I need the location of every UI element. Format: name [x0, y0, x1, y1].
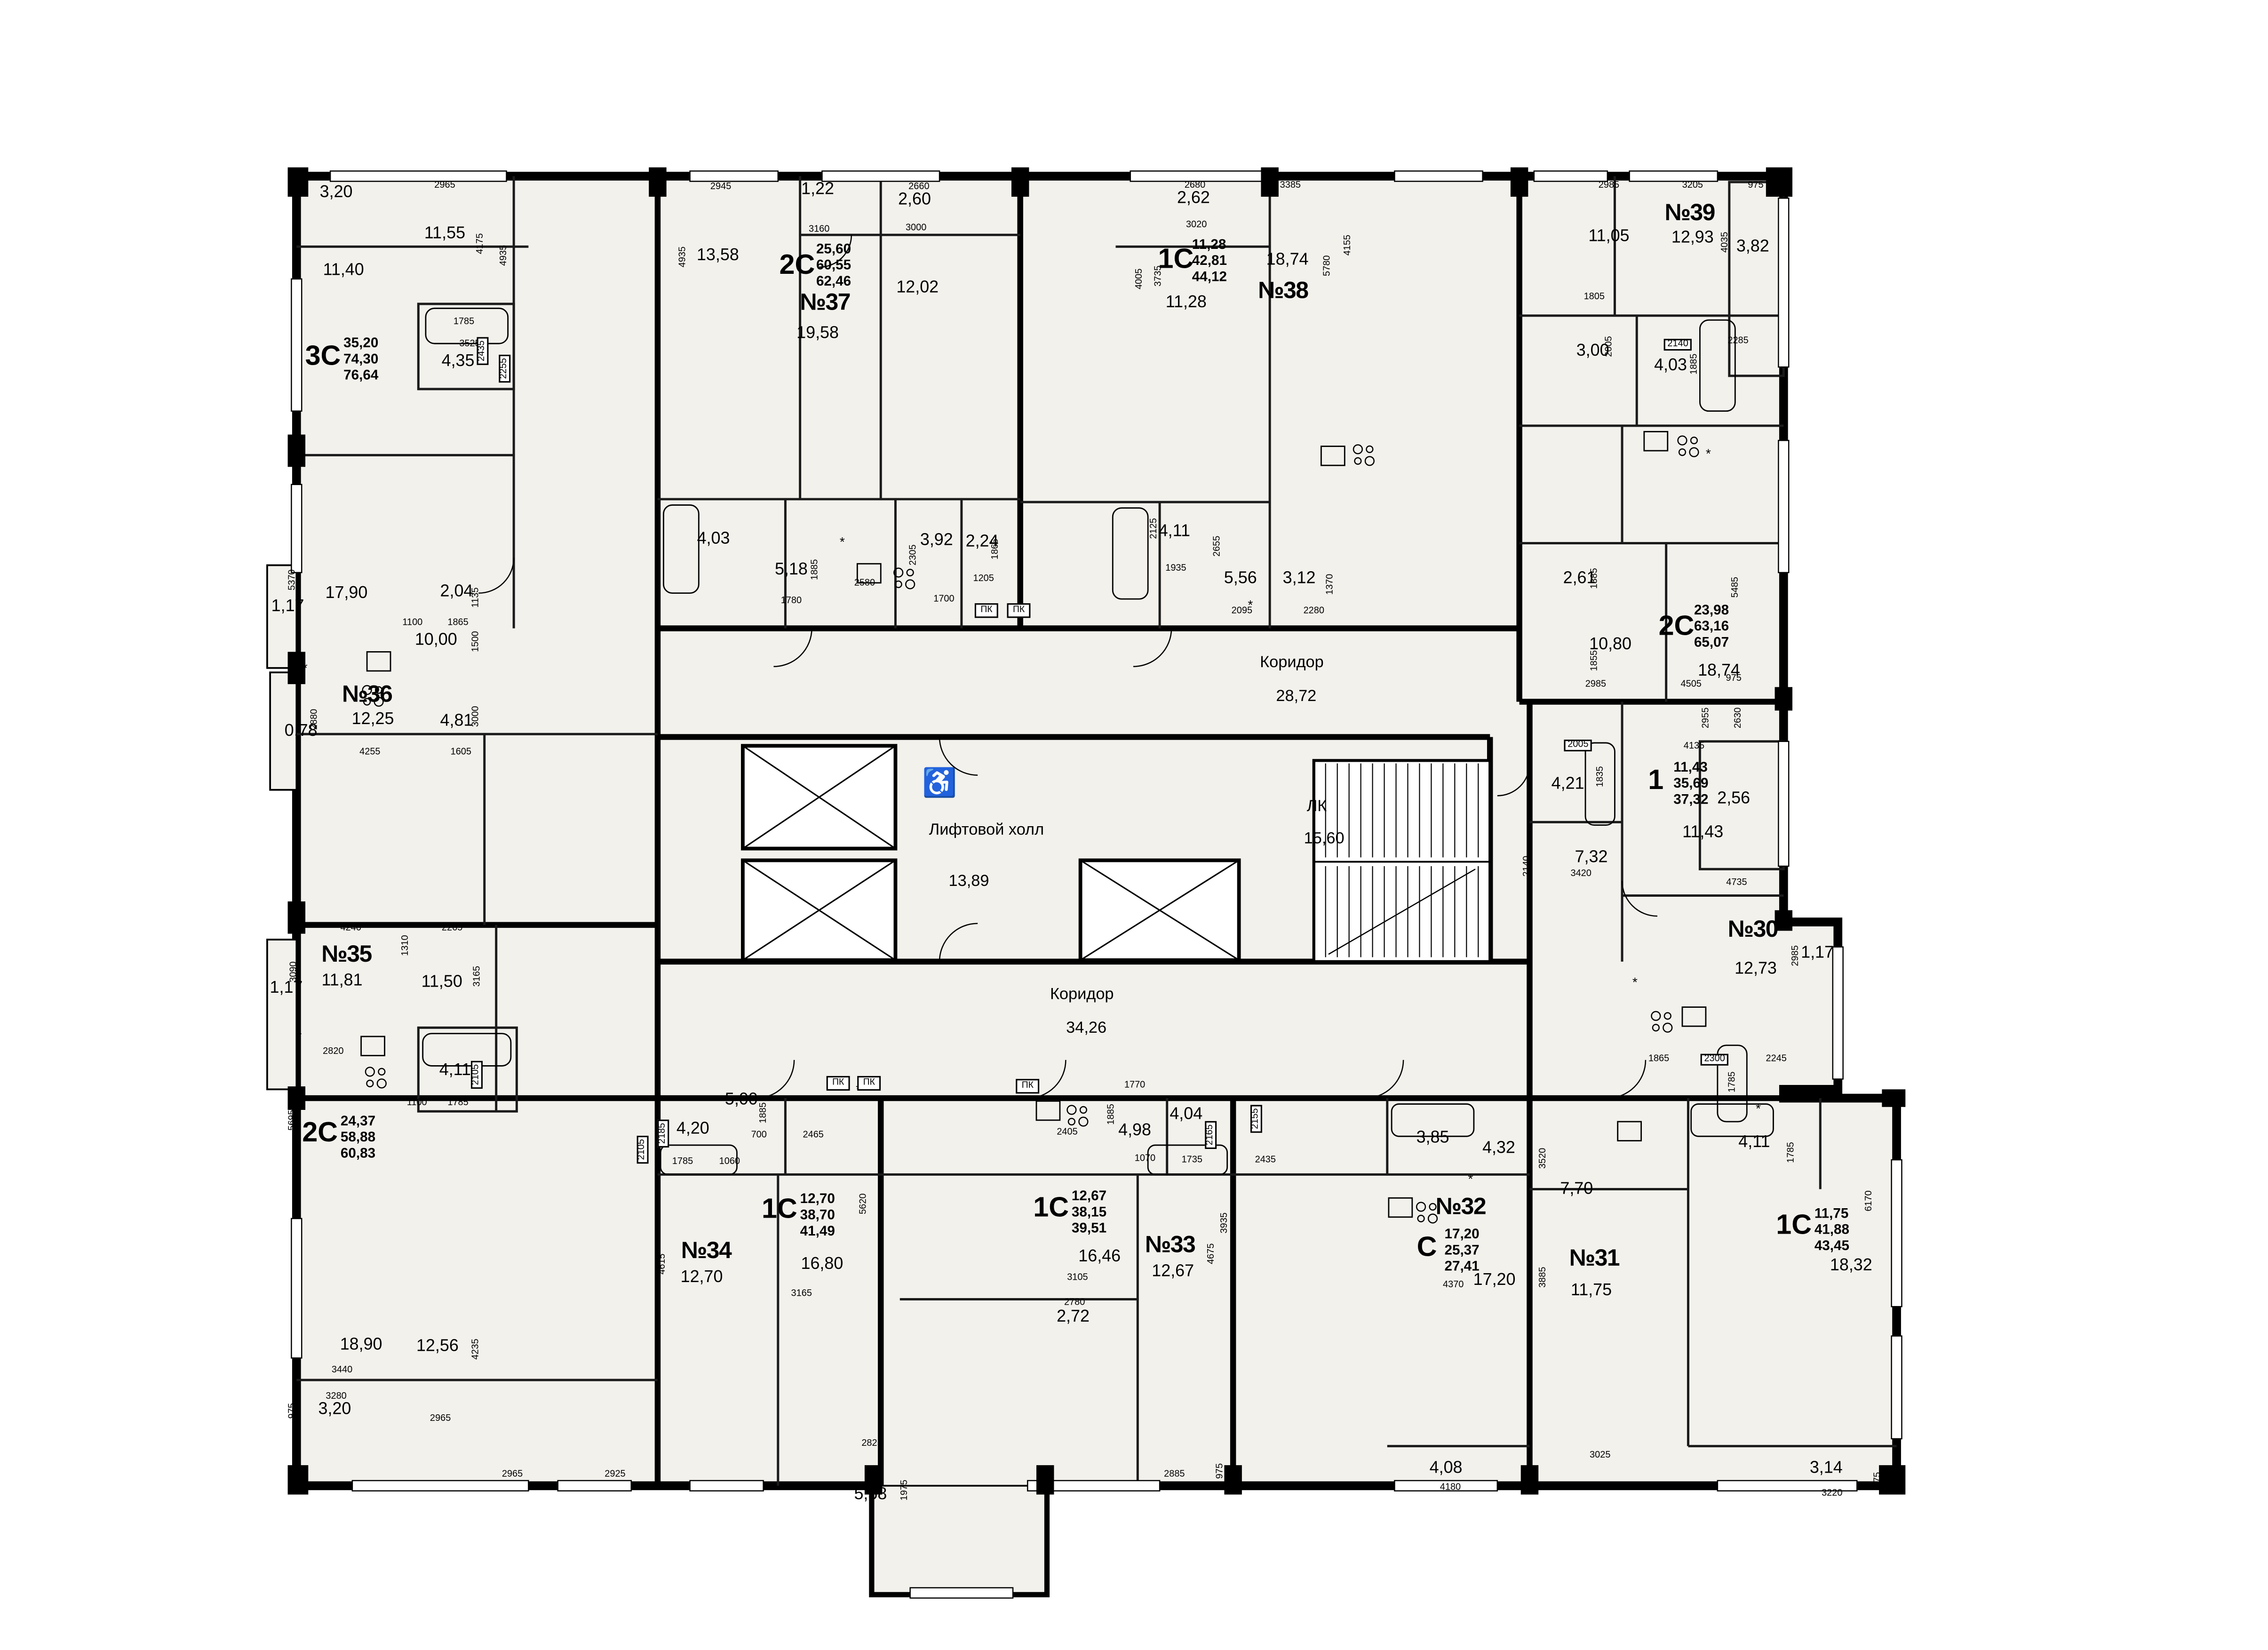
- apartment-area-triplet: 12,6738,1539,51: [1072, 1188, 1106, 1237]
- room-area-label: 11,55: [424, 226, 465, 243]
- room-area-label: 4,03: [697, 532, 730, 549]
- dimension-label: 3935: [1221, 1212, 1231, 1233]
- apartment-area-triplet: 24,3758,8860,83: [341, 1114, 375, 1162]
- dimension-label: 4370: [1443, 1281, 1464, 1291]
- dimension-label: 4175: [477, 233, 486, 254]
- dimension-label: 5780: [1324, 255, 1333, 276]
- dimension-label: 3520: [1540, 1148, 1549, 1169]
- apartment-area-triplet: 11,2842,8144,12: [1192, 237, 1227, 286]
- dimension-label: 1310: [402, 935, 411, 956]
- dimension-label: 3165: [791, 1290, 812, 1299]
- svg-text:*: *: [1706, 446, 1711, 461]
- room-area-label: 12,73: [1735, 962, 1777, 979]
- dimension-label: 2435: [1255, 1156, 1276, 1166]
- room-area-label: 4,81: [440, 714, 473, 731]
- dimension-label: 1100: [407, 1100, 427, 1109]
- fire-cabinet-label: ПК: [827, 1076, 850, 1091]
- room-area-label: 3,85: [1417, 1131, 1449, 1148]
- dimension-label: 2825: [861, 1440, 882, 1449]
- dimension-label: 4255: [359, 749, 380, 758]
- dimension-label: 1785: [1729, 1072, 1738, 1092]
- room-area-label: 1,17: [271, 599, 304, 616]
- dimension-label: 920: [295, 189, 304, 204]
- room-area-label: 4,21: [1552, 777, 1584, 794]
- apartment-area-triplet: 35,2074,3076,64: [343, 335, 378, 384]
- apartment-number-label: №30: [1727, 919, 1778, 942]
- room-area-label: 11,75: [1571, 1283, 1612, 1300]
- apartment-number-label: №32: [1436, 1196, 1486, 1220]
- dimension-label: 4005: [1136, 269, 1146, 289]
- dimension-label: 2965: [430, 1415, 451, 1424]
- apartment-type-label: 1: [1648, 767, 1663, 795]
- dimension-label: 1500: [472, 631, 482, 652]
- dimension-label: 2280: [1304, 607, 1324, 617]
- room-area-label: 2,62: [1177, 191, 1210, 208]
- dimension-label: 2005: [1564, 740, 1592, 752]
- apartment-area-triplet: 12,7038,7041,49: [800, 1191, 835, 1240]
- room-area-label: 18,90: [340, 1338, 382, 1355]
- dimension-label: 3280: [326, 1393, 346, 1403]
- apartment-number-label: №31: [1569, 1248, 1619, 1271]
- dimension-label: 3165: [474, 966, 483, 987]
- dimension-label: 1885: [760, 1102, 770, 1123]
- common-area-name: Коридор: [1050, 987, 1114, 1003]
- common-area-name: Коридор: [1260, 655, 1324, 671]
- room-area-label: 4,11: [1159, 525, 1190, 542]
- room-area-label: 1,17: [1801, 946, 1834, 963]
- room-area-label: 11,40: [323, 263, 364, 280]
- dimension-label: 975: [1217, 1463, 1226, 1479]
- floor-plan-page: **** ***** №363С35,2074,3076,643,2011,40…: [0, 0, 2268, 1650]
- common-area-name: ЛК: [1307, 799, 1327, 815]
- room-area-label: 11,05: [1588, 230, 1629, 247]
- dimension-label: 1885: [812, 559, 821, 580]
- apartment-area-triplet: 11,4335,6937,32: [1673, 760, 1708, 808]
- dimension-label: 2255: [499, 354, 511, 383]
- room-area-label: 12,02: [896, 281, 939, 298]
- room-area-label: 4,32: [1482, 1141, 1515, 1158]
- room-area-label: 12,93: [1671, 231, 1714, 248]
- dimension-label: 1205: [973, 575, 994, 585]
- dimension-label: 4235: [472, 1339, 482, 1359]
- dimension-label: 1865: [447, 619, 468, 629]
- dimension-label: 3885: [1540, 1267, 1549, 1288]
- room-area-label: 2,04: [440, 585, 473, 602]
- dimension-label: 1805: [1584, 293, 1605, 303]
- dimension-label: 700: [751, 1132, 767, 1141]
- dimension-label: 1935: [1165, 565, 1186, 574]
- room-area-label: 10,00: [415, 633, 457, 650]
- dimension-label: 1605: [451, 749, 471, 758]
- dimension-label: 1780: [781, 597, 802, 606]
- room-area-label: 3,14: [1810, 1461, 1843, 1478]
- room-area-label: 3,20: [318, 1403, 351, 1419]
- dimension-label: 3735: [1155, 265, 1164, 286]
- dimension-label: 3000: [472, 706, 482, 727]
- dimension-label: 5485: [1732, 577, 1741, 598]
- dimension-label: 2105: [637, 1135, 649, 1164]
- room-area-label: 2,60: [898, 193, 931, 210]
- apartment-number-label: №34: [681, 1241, 732, 1264]
- room-area-label: 18,74: [1266, 253, 1309, 270]
- staircase: [1314, 760, 1490, 961]
- dimension-label: 2465: [803, 1132, 824, 1141]
- room-area-label: 4,04: [1170, 1108, 1202, 1124]
- common-area-value: 15,60: [1304, 832, 1345, 848]
- room-area-label: 17,90: [326, 586, 368, 603]
- dimension-label: 3160: [809, 226, 829, 235]
- dimension-label: 2305: [910, 544, 919, 565]
- room-area-label: 4,08: [1430, 1461, 1463, 1478]
- dimension-label: 4135: [1684, 742, 1704, 752]
- dimension-label: 4240: [341, 925, 361, 934]
- room-area-label: 4,03: [1654, 359, 1687, 375]
- dimension-label: 4935: [679, 247, 689, 267]
- dimension-label: 4615: [659, 1253, 668, 1274]
- room-area-label: 4,11: [439, 1063, 471, 1080]
- dimension-label: 4155: [1345, 235, 1354, 255]
- dimension-label: 4180: [1440, 1484, 1461, 1493]
- room-area-label: 3,92: [920, 533, 953, 550]
- dimension-label: 2985: [1599, 182, 1619, 191]
- dimension-label: 2435: [477, 337, 489, 365]
- dimension-label: 2105: [471, 1060, 483, 1089]
- dimension-label: 2885: [1164, 1471, 1185, 1480]
- dimension-label: 3105: [1067, 1274, 1088, 1283]
- dimension-label: 1100: [402, 619, 422, 629]
- dimension-label: 2165: [1205, 1121, 1217, 1149]
- room-area-label: 2,56: [1717, 792, 1750, 809]
- room-area-label: 4,98: [1118, 1124, 1151, 1140]
- dimension-label: 975: [1874, 1472, 1884, 1488]
- apartment-number-label: №35: [321, 944, 372, 967]
- dimension-label: 2300: [1701, 1054, 1729, 1066]
- apartment-area-triplet: 11,7541,8843,45: [1814, 1206, 1849, 1254]
- dimension-label: 2005: [1606, 336, 1615, 357]
- dimension-label: 1370: [1327, 574, 1336, 595]
- dimension-label: 2780: [1064, 1299, 1085, 1308]
- dimension-label: 4035: [1722, 232, 1731, 253]
- dimension-label: 1865: [992, 539, 1002, 559]
- apartment-type-label: 1С: [1776, 1212, 1812, 1240]
- dimension-label: 4735: [1726, 879, 1747, 888]
- dimension-label: 2125: [1151, 518, 1160, 539]
- apartment-number-label: №33: [1145, 1235, 1195, 1258]
- dimension-label: 2095: [1232, 607, 1252, 617]
- apartment-type-label: 1С: [1033, 1194, 1069, 1222]
- room-area-label: 11,50: [422, 975, 462, 992]
- dimension-label: 2965: [502, 1471, 523, 1480]
- common-area-name: Лифтовой холл: [929, 823, 1044, 839]
- dimension-label: 2985: [1792, 945, 1801, 966]
- room-area-label: 5,58: [854, 1488, 887, 1505]
- apartment-number-label: №39: [1664, 203, 1715, 226]
- dimension-label: 5620: [860, 1194, 869, 1214]
- room-area-label: 5,18: [775, 563, 808, 580]
- dimension-label: 3025: [1590, 1451, 1610, 1461]
- room-area-label: 2,72: [1057, 1310, 1090, 1327]
- room-area-label: 18,32: [1830, 1259, 1872, 1275]
- dimension-label: 6170: [1865, 1190, 1875, 1211]
- svg-text:*: *: [302, 661, 308, 675]
- dimension-label: 1975: [901, 1480, 910, 1500]
- dimension-label: 975: [1726, 675, 1742, 685]
- room-area-label: 4,35: [442, 354, 475, 371]
- dimension-label: 2985: [1585, 681, 1606, 690]
- dimension-label: 1885: [1691, 354, 1700, 375]
- dimension-label: 2140: [1523, 856, 1533, 877]
- room-area-label: 1,22: [801, 183, 834, 199]
- room-area-label: 12,67: [1152, 1264, 1194, 1281]
- dimension-label: 2925: [605, 1471, 625, 1480]
- fire-cabinet-label: ПК: [975, 603, 998, 618]
- dimension-label: 3205: [1682, 182, 1703, 191]
- apartment-type-label: С: [1417, 1234, 1437, 1262]
- common-area-value: 13,89: [949, 874, 989, 890]
- apartment-type-label: 2С: [302, 1119, 338, 1147]
- dimension-label: 1785: [454, 318, 474, 327]
- fire-cabinet-label: ПК: [857, 1076, 881, 1091]
- dimension-label: 3440: [332, 1366, 352, 1376]
- dimension-label: 3235: [293, 257, 302, 278]
- dimension-label: 3220: [1822, 1490, 1842, 1499]
- dimension-label: 2140: [1664, 339, 1692, 351]
- svg-text:*: *: [296, 1029, 302, 1044]
- apartment-type-label: 2С: [1659, 613, 1695, 641]
- room-area-label: 17,20: [1473, 1273, 1516, 1290]
- common-area-value: 28,72: [1276, 689, 1316, 705]
- dimension-label: 1385: [1591, 568, 1600, 589]
- room-area-label: 4,20: [676, 1122, 709, 1139]
- svg-text:*: *: [1468, 1172, 1473, 1186]
- apartment-area-triplet: 17,2025,3727,41: [1444, 1227, 1479, 1275]
- svg-text:*: *: [1756, 1101, 1761, 1116]
- apartment-number-label: №37: [800, 292, 850, 316]
- dimension-label: 2185: [657, 1119, 669, 1148]
- dimension-label: 1785: [447, 1100, 468, 1109]
- dimension-label: 2655: [1214, 536, 1223, 557]
- room-area-label: 3,82: [1736, 239, 1769, 256]
- dimension-label: 4675: [1208, 1243, 1217, 1264]
- room-area-label: 12,70: [681, 1270, 723, 1287]
- dimension-label: 1700: [933, 596, 954, 605]
- room-area-label: 5,00: [725, 1092, 758, 1109]
- dimension-label: 2405: [1057, 1129, 1077, 1138]
- room-area-label: 12,25: [352, 712, 394, 729]
- dimension-label: 1070: [1135, 1155, 1155, 1164]
- dimension-label: 1885: [1108, 1104, 1117, 1124]
- room-area-label: 3,12: [1283, 572, 1316, 589]
- dimension-label: 3420: [1570, 870, 1591, 880]
- dimension-label: 975: [1748, 182, 1763, 191]
- dimension-label: 3000: [906, 224, 926, 234]
- apartment-area-triplet: 25,6060,5562,46: [816, 241, 851, 290]
- dimension-label: 5370: [289, 569, 298, 590]
- wheelchair-icon: ♿: [922, 770, 957, 798]
- dimension-label: 975: [289, 1403, 298, 1419]
- floor-plan-canvas: **** ***** №363С35,2074,3076,643,2011,40…: [0, 0, 2268, 1650]
- dimension-label: 2265: [442, 925, 462, 934]
- dimension-label: 2285: [1727, 337, 1748, 347]
- dimension-label: 2580: [854, 580, 875, 589]
- fire-cabinet-label: ПК: [1016, 1079, 1039, 1094]
- dimension-label: 2880: [311, 709, 320, 730]
- dimension-label: 2660: [908, 183, 929, 192]
- svg-text:*: *: [1632, 975, 1638, 989]
- common-area-value: 34,26: [1066, 1021, 1106, 1037]
- dimension-label: 2245: [1766, 1055, 1786, 1065]
- dimension-label: 5695: [289, 1110, 298, 1131]
- fire-cabinet-label: ПК: [1007, 603, 1030, 618]
- apartment-area-triplet: 23,9863,1665,07: [1694, 603, 1729, 651]
- dimension-label: 1770: [1124, 1082, 1145, 1091]
- dimension-label: 3090: [290, 962, 300, 982]
- dimension-label: 2680: [1185, 182, 1205, 191]
- dimension-label: 1060: [719, 1158, 740, 1167]
- dimension-label: 2155: [1250, 1105, 1263, 1133]
- room-area-label: 11,28: [1166, 295, 1207, 312]
- dimension-label: 3020: [1186, 222, 1207, 231]
- room-area-label: 7,32: [1575, 850, 1608, 867]
- dimension-label: 3385: [1280, 182, 1301, 191]
- apartment-type-label: 1С: [762, 1196, 797, 1224]
- dimension-label: 2820: [323, 1048, 343, 1057]
- dimension-label: 2955: [1703, 708, 1712, 728]
- dimension-label: 1835: [1597, 766, 1606, 787]
- room-area-label: 3,20: [320, 185, 353, 202]
- dimension-label: 2945: [710, 183, 731, 192]
- room-area-label: 12,56: [416, 1339, 459, 1356]
- room-area-label: 19,58: [796, 327, 839, 343]
- room-area-label: 13,58: [697, 248, 739, 265]
- dimension-label: 1135: [472, 588, 482, 608]
- room-area-label: 11,81: [321, 974, 362, 991]
- dimension-label: 1855: [1591, 650, 1600, 671]
- dimension-label: 1735: [1182, 1156, 1202, 1166]
- dimension-label: 4505: [1681, 681, 1702, 690]
- svg-text:*: *: [840, 534, 845, 549]
- room-area-label: 16,46: [1078, 1250, 1121, 1267]
- room-area-label: 1,17: [270, 981, 303, 998]
- apartment-type-label: 2С: [779, 252, 815, 279]
- dimension-label: 1785: [672, 1158, 693, 1167]
- dimension-label: 4935: [500, 245, 509, 266]
- room-area-label: 11,43: [1682, 825, 1723, 842]
- dimension-label: 1865: [1648, 1055, 1669, 1065]
- room-area-label: 16,80: [801, 1257, 844, 1274]
- apartment-number-label: №36: [342, 684, 392, 708]
- room-area-label: 4,11: [1738, 1135, 1770, 1152]
- dimension-label: 2630: [1735, 708, 1744, 728]
- dimension-label: 2965: [434, 182, 455, 191]
- room-area-label: 5,56: [1224, 572, 1257, 589]
- dimension-label: 1785: [1788, 1142, 1797, 1163]
- apartment-number-label: №38: [1258, 280, 1308, 304]
- apartment-type-label: 3С: [305, 343, 341, 371]
- room-area-label: 7,70: [1560, 1182, 1593, 1199]
